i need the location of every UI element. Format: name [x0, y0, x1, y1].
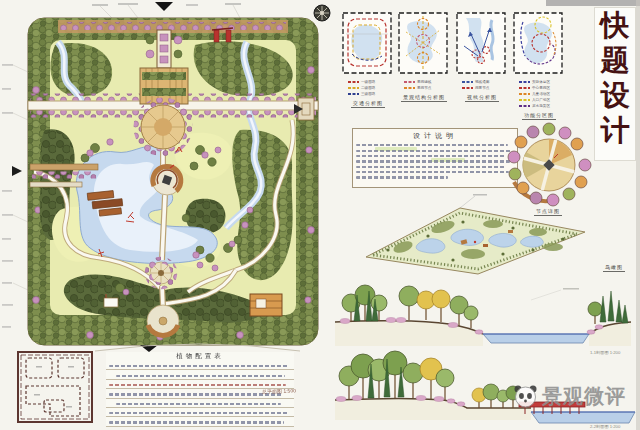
master-plan-drawing	[0, 0, 335, 354]
design-notes-title: 设计说明	[353, 131, 517, 141]
analysis-diagram-traffic: 一级园路 二级园路 三级园路 交通分析图	[342, 12, 394, 106]
zoning-sketch	[14, 348, 98, 428]
legend-label: 观景节点	[475, 86, 489, 90]
diagram-caption: 景观结构分析图	[401, 94, 447, 102]
aerial-caption: 鸟瞰图	[592, 264, 636, 270]
legend-label: 视线通廊	[475, 80, 489, 84]
plant-row	[106, 427, 294, 430]
legend-label: 景观节点	[417, 86, 431, 90]
plant-list-rows	[106, 361, 294, 430]
zoning-diagram-drawing	[513, 12, 563, 74]
diagram-caption: 视线分析图	[465, 94, 499, 102]
analysis-diagram-structure: 景观轴线 景观节点 景观结构分析图	[398, 12, 450, 100]
plant-row	[106, 408, 294, 417]
title-char: 题	[598, 43, 632, 78]
legend-label: 一级园路	[361, 80, 375, 84]
design-board: { "board": { "banner_chars": ["快","题","设…	[0, 0, 640, 430]
structure-diagram-drawing	[398, 12, 448, 74]
legend-label: 入口广场区	[532, 98, 550, 102]
legend-label: 二级园路	[361, 86, 375, 90]
legend-label: 中心景观区	[532, 86, 550, 90]
west-entrance-marker	[12, 166, 22, 176]
legend-label: 儿童活动区	[532, 92, 550, 96]
legend-label: 滨水游赏区	[532, 104, 550, 108]
section-1-drawing	[331, 280, 637, 348]
analysis-diagram-zoning: 安静休息区 中心景观区 儿童活动区 入口广场区 滨水游赏区 功能分区图	[513, 12, 565, 118]
handwritten-paragraph	[353, 144, 517, 178]
plant-list-title: 植物配置表	[106, 352, 294, 361]
plant-row	[106, 399, 294, 408]
title-char: 快	[598, 8, 632, 43]
sightline-diagram-drawing	[456, 12, 506, 74]
title-char: 设	[598, 78, 632, 113]
plant-row	[106, 361, 294, 370]
watermark-text: 景观微评	[542, 383, 626, 410]
analysis-diagram-sightline: 视线通廊 观景节点 视线分析图	[456, 12, 508, 100]
north-entrance-marker	[155, 2, 173, 11]
legend-label: 三级园路	[361, 92, 375, 96]
section-2-caption: 2-2剖面图 1:200	[590, 424, 620, 429]
south-arc-node	[147, 305, 179, 337]
southeast-pavilion	[250, 294, 282, 316]
legend-label: 景观轴线	[417, 80, 431, 84]
circle-plaza	[137, 101, 189, 153]
aerial-view-drawing	[333, 192, 639, 284]
plant-row	[106, 370, 294, 379]
plan-scale-note: 总平面图 1:500	[262, 387, 296, 394]
photo-edge-strip	[546, 0, 640, 6]
diagram-caption: 功能分区图	[522, 112, 556, 120]
legend-label: 安静休息区	[532, 80, 550, 84]
stylized-title-banner: 快 题 设 计	[594, 7, 636, 161]
flower-ring-node	[148, 260, 174, 286]
title-char: 计	[598, 113, 632, 148]
traffic-diagram-drawing	[342, 12, 392, 74]
panda-logo-icon	[512, 383, 539, 410]
diagram-caption: 交通分析图	[351, 100, 385, 108]
plant-row	[106, 417, 294, 426]
north-compass-icon	[314, 5, 330, 21]
design-notes-box: 设计说明	[352, 128, 518, 188]
arc-pavilion-node	[152, 165, 182, 195]
watermark: 景观微评	[512, 383, 626, 410]
